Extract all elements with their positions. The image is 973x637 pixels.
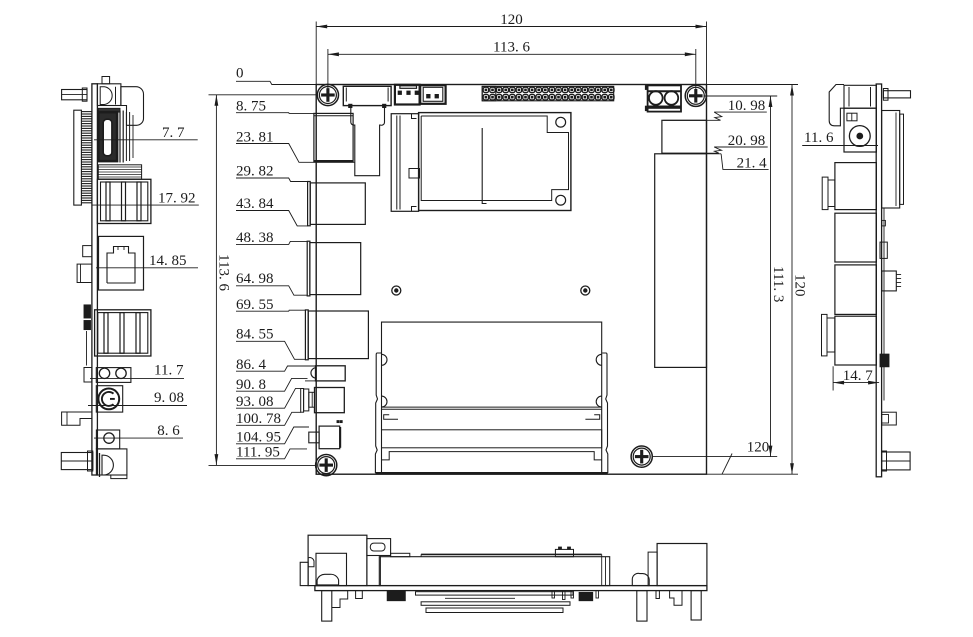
svg-text:86. 4: 86. 4 bbox=[236, 357, 267, 373]
svg-text:17. 92: 17. 92 bbox=[158, 190, 196, 206]
svg-text:93. 08: 93. 08 bbox=[236, 394, 274, 410]
svg-text:104. 95: 104. 95 bbox=[236, 429, 281, 445]
svg-text:90. 8: 90. 8 bbox=[236, 377, 266, 393]
svg-text:23. 81: 23. 81 bbox=[236, 129, 274, 145]
svg-text:113. 6: 113. 6 bbox=[493, 40, 530, 56]
svg-text:14. 85: 14. 85 bbox=[149, 253, 187, 269]
svg-text:0: 0 bbox=[236, 66, 244, 82]
svg-text:69. 55: 69. 55 bbox=[236, 297, 274, 313]
svg-text:64. 98: 64. 98 bbox=[236, 271, 274, 287]
svg-text:10. 98: 10. 98 bbox=[728, 98, 766, 114]
svg-text:111. 3: 111. 3 bbox=[770, 266, 786, 302]
svg-text:11. 7: 11. 7 bbox=[154, 363, 184, 379]
svg-text:113. 6: 113. 6 bbox=[216, 254, 232, 291]
svg-text:48. 38: 48. 38 bbox=[236, 230, 274, 246]
svg-text:120: 120 bbox=[792, 274, 808, 297]
svg-text:8. 75: 8. 75 bbox=[236, 99, 266, 115]
svg-text:120: 120 bbox=[747, 440, 770, 456]
svg-text:84. 55: 84. 55 bbox=[236, 326, 274, 342]
svg-text:43. 84: 43. 84 bbox=[236, 196, 274, 212]
svg-text:100. 78: 100. 78 bbox=[236, 411, 281, 427]
svg-text:8. 6: 8. 6 bbox=[157, 423, 180, 439]
svg-text:7. 7: 7. 7 bbox=[162, 125, 185, 141]
svg-text:21. 4: 21. 4 bbox=[737, 155, 768, 171]
svg-text:11. 6: 11. 6 bbox=[804, 130, 834, 146]
svg-text:9. 08: 9. 08 bbox=[154, 390, 184, 406]
svg-text:29. 82: 29. 82 bbox=[236, 163, 274, 179]
svg-text:120: 120 bbox=[500, 12, 523, 28]
svg-text:14. 7: 14. 7 bbox=[843, 368, 874, 384]
svg-text:111. 95: 111. 95 bbox=[236, 444, 280, 460]
